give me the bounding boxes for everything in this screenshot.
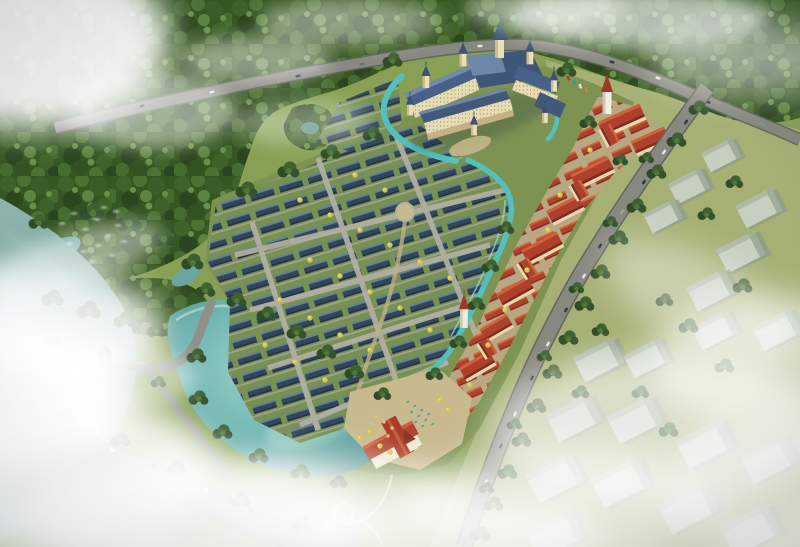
rendering-canvas (0, 0, 800, 547)
vignette (0, 0, 800, 547)
aerial-rendering (0, 0, 800, 547)
